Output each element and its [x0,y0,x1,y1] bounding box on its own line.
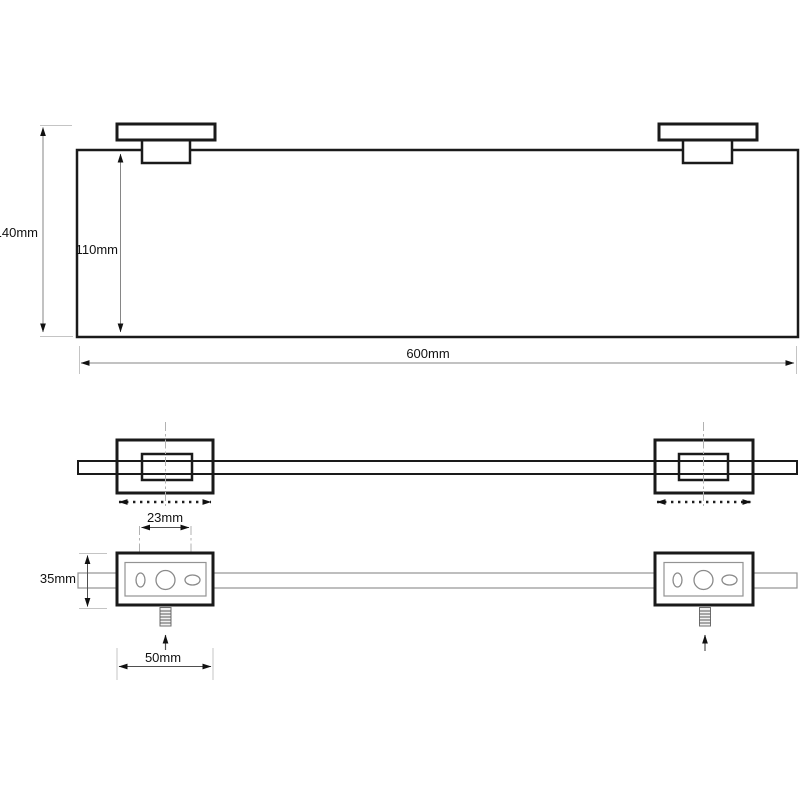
slot-hole-vertical [673,573,682,587]
left-bracket-tab-front [142,138,190,163]
technical-drawing: 140mm 110mm 600mm 23mm [0,0,800,800]
slot-hole-horizontal [185,575,200,585]
screw-icon [160,608,171,627]
right-bracket-plate-front [659,124,757,140]
dim-label-overall-height: 140mm [0,225,38,240]
mounting-detail-view: 35mm 50mm [40,553,797,680]
dim-label-glass-height: 110mm [76,242,118,257]
slot-hole-vertical [136,573,145,587]
left-bracket-plate-front [117,124,215,140]
left-bracket-detail [117,553,213,650]
shelf-plan-outline [78,461,797,474]
front-elevation-view: 140mm 110mm 600mm [0,124,798,374]
drawing-canvas: 140mm 110mm 600mm 23mm [0,0,800,800]
center-hole [694,571,713,590]
dim-label-bracket-height: 35mm [40,571,76,586]
slot-hole-horizontal [722,575,737,585]
screw-icon [700,608,711,627]
dim-label-hole-spacing: 23mm [147,510,183,525]
dim-label-bracket-width: 50mm [145,650,181,665]
center-hole [156,571,175,590]
dim-label-overall-width: 600mm [406,346,449,361]
right-bracket-tab-front [683,138,732,163]
shelf-front-outline [77,150,798,337]
right-bracket-detail [655,553,753,651]
